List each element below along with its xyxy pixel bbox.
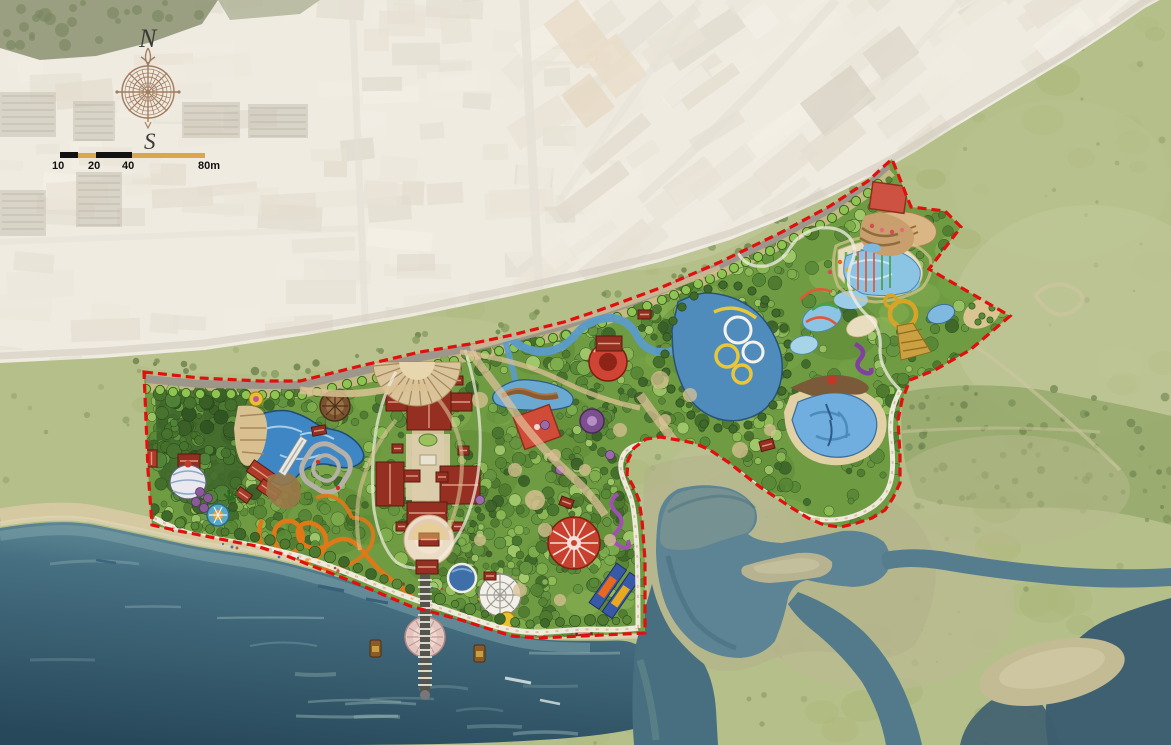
- svg-text:80m: 80m: [198, 160, 220, 172]
- svg-text:40: 40: [122, 160, 134, 172]
- svg-text:10: 10: [52, 160, 64, 172]
- svg-text:S: S: [144, 129, 156, 154]
- svg-text:N: N: [138, 24, 158, 53]
- svg-text:20: 20: [88, 160, 100, 172]
